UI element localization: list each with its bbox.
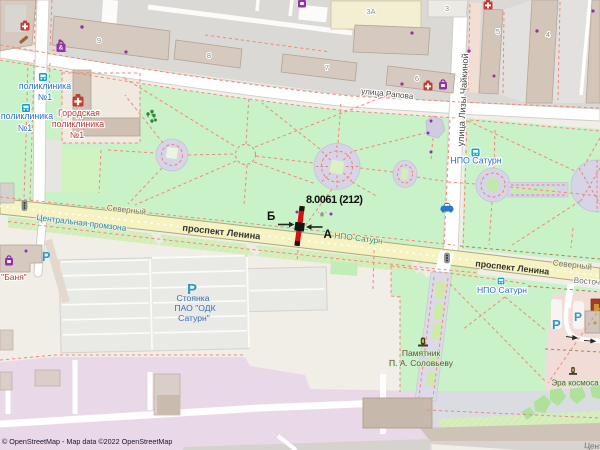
- svg-text:8.0061 (212): 8.0061 (212): [306, 194, 363, 206]
- svg-text:8: 8: [207, 51, 211, 60]
- svg-text:5: 5: [496, 27, 500, 36]
- svg-text:Сатурн": Сатурн": [178, 313, 210, 323]
- svg-text:P: P: [42, 250, 50, 264]
- svg-text:Памятник: Памятник: [402, 348, 441, 358]
- svg-text:3А: 3А: [366, 7, 375, 16]
- svg-text:Стоянка: Стоянка: [177, 293, 210, 303]
- svg-text:поликлиника: поликлиника: [19, 81, 71, 91]
- svg-text:поликлиника: поликлиника: [1, 111, 53, 121]
- svg-text:© OpenStreetMap - Map data ©20: © OpenStreetMap - Map data ©2022 OpenStr…: [2, 437, 172, 446]
- svg-text:НПО Сатурн: НПО Сатурн: [450, 156, 501, 166]
- svg-text:"Баня": "Баня": [1, 272, 27, 282]
- svg-text:№1: №1: [70, 130, 84, 140]
- svg-text:Центр: Центр: [584, 441, 600, 450]
- svg-text:№1: №1: [18, 123, 32, 133]
- svg-text:4: 4: [546, 30, 550, 39]
- svg-text:P: P: [574, 310, 582, 324]
- svg-text:Эра космоса: Эра космоса: [551, 379, 599, 388]
- svg-text:Б: Б: [267, 211, 275, 223]
- svg-text:&: &: [59, 45, 64, 52]
- svg-text:НПО Сатурн: НПО Сатурн: [477, 285, 527, 295]
- svg-text:поликлиника: поликлиника: [52, 119, 104, 129]
- svg-text:Городская: Городская: [58, 108, 100, 118]
- svg-text:6: 6: [415, 74, 419, 83]
- svg-text:ПАО "ОДК: ПАО "ОДК: [174, 303, 215, 313]
- svg-text:P: P: [552, 317, 561, 332]
- svg-text:3: 3: [445, 4, 449, 13]
- svg-text:7: 7: [325, 63, 329, 72]
- svg-text:9: 9: [97, 36, 101, 45]
- svg-text:П. А. Соловьеву: П. А. Соловьеву: [389, 358, 454, 368]
- svg-text:№1: №1: [38, 92, 52, 102]
- svg-text:А: А: [324, 229, 332, 241]
